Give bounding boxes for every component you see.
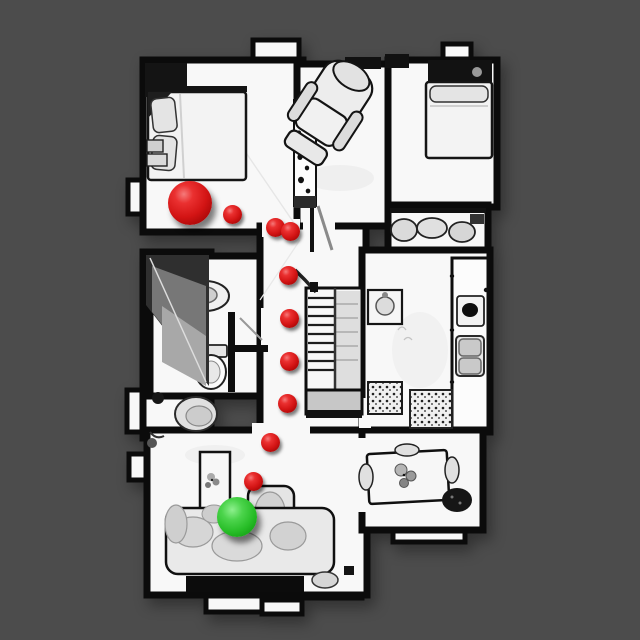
furniture-bedroom-topright [426,60,492,158]
cooktop [462,303,478,317]
scene-canvas [0,0,640,640]
doorway-bathroom [261,308,275,348]
dark-chair [442,488,472,512]
doorway-bedroom-hall [262,219,300,237]
dining-chair [445,457,459,483]
dining-chair [395,444,419,456]
opening-sitting-hall [303,219,335,235]
doorway-hall-living [252,423,310,439]
dining-chair [359,464,373,490]
patterned-rug [368,382,402,414]
floorplan [0,0,640,640]
house [127,40,497,614]
pillow [430,86,488,102]
pillow [150,97,177,133]
porch-step-lower [262,600,302,614]
patterned-cabinet [410,390,452,428]
